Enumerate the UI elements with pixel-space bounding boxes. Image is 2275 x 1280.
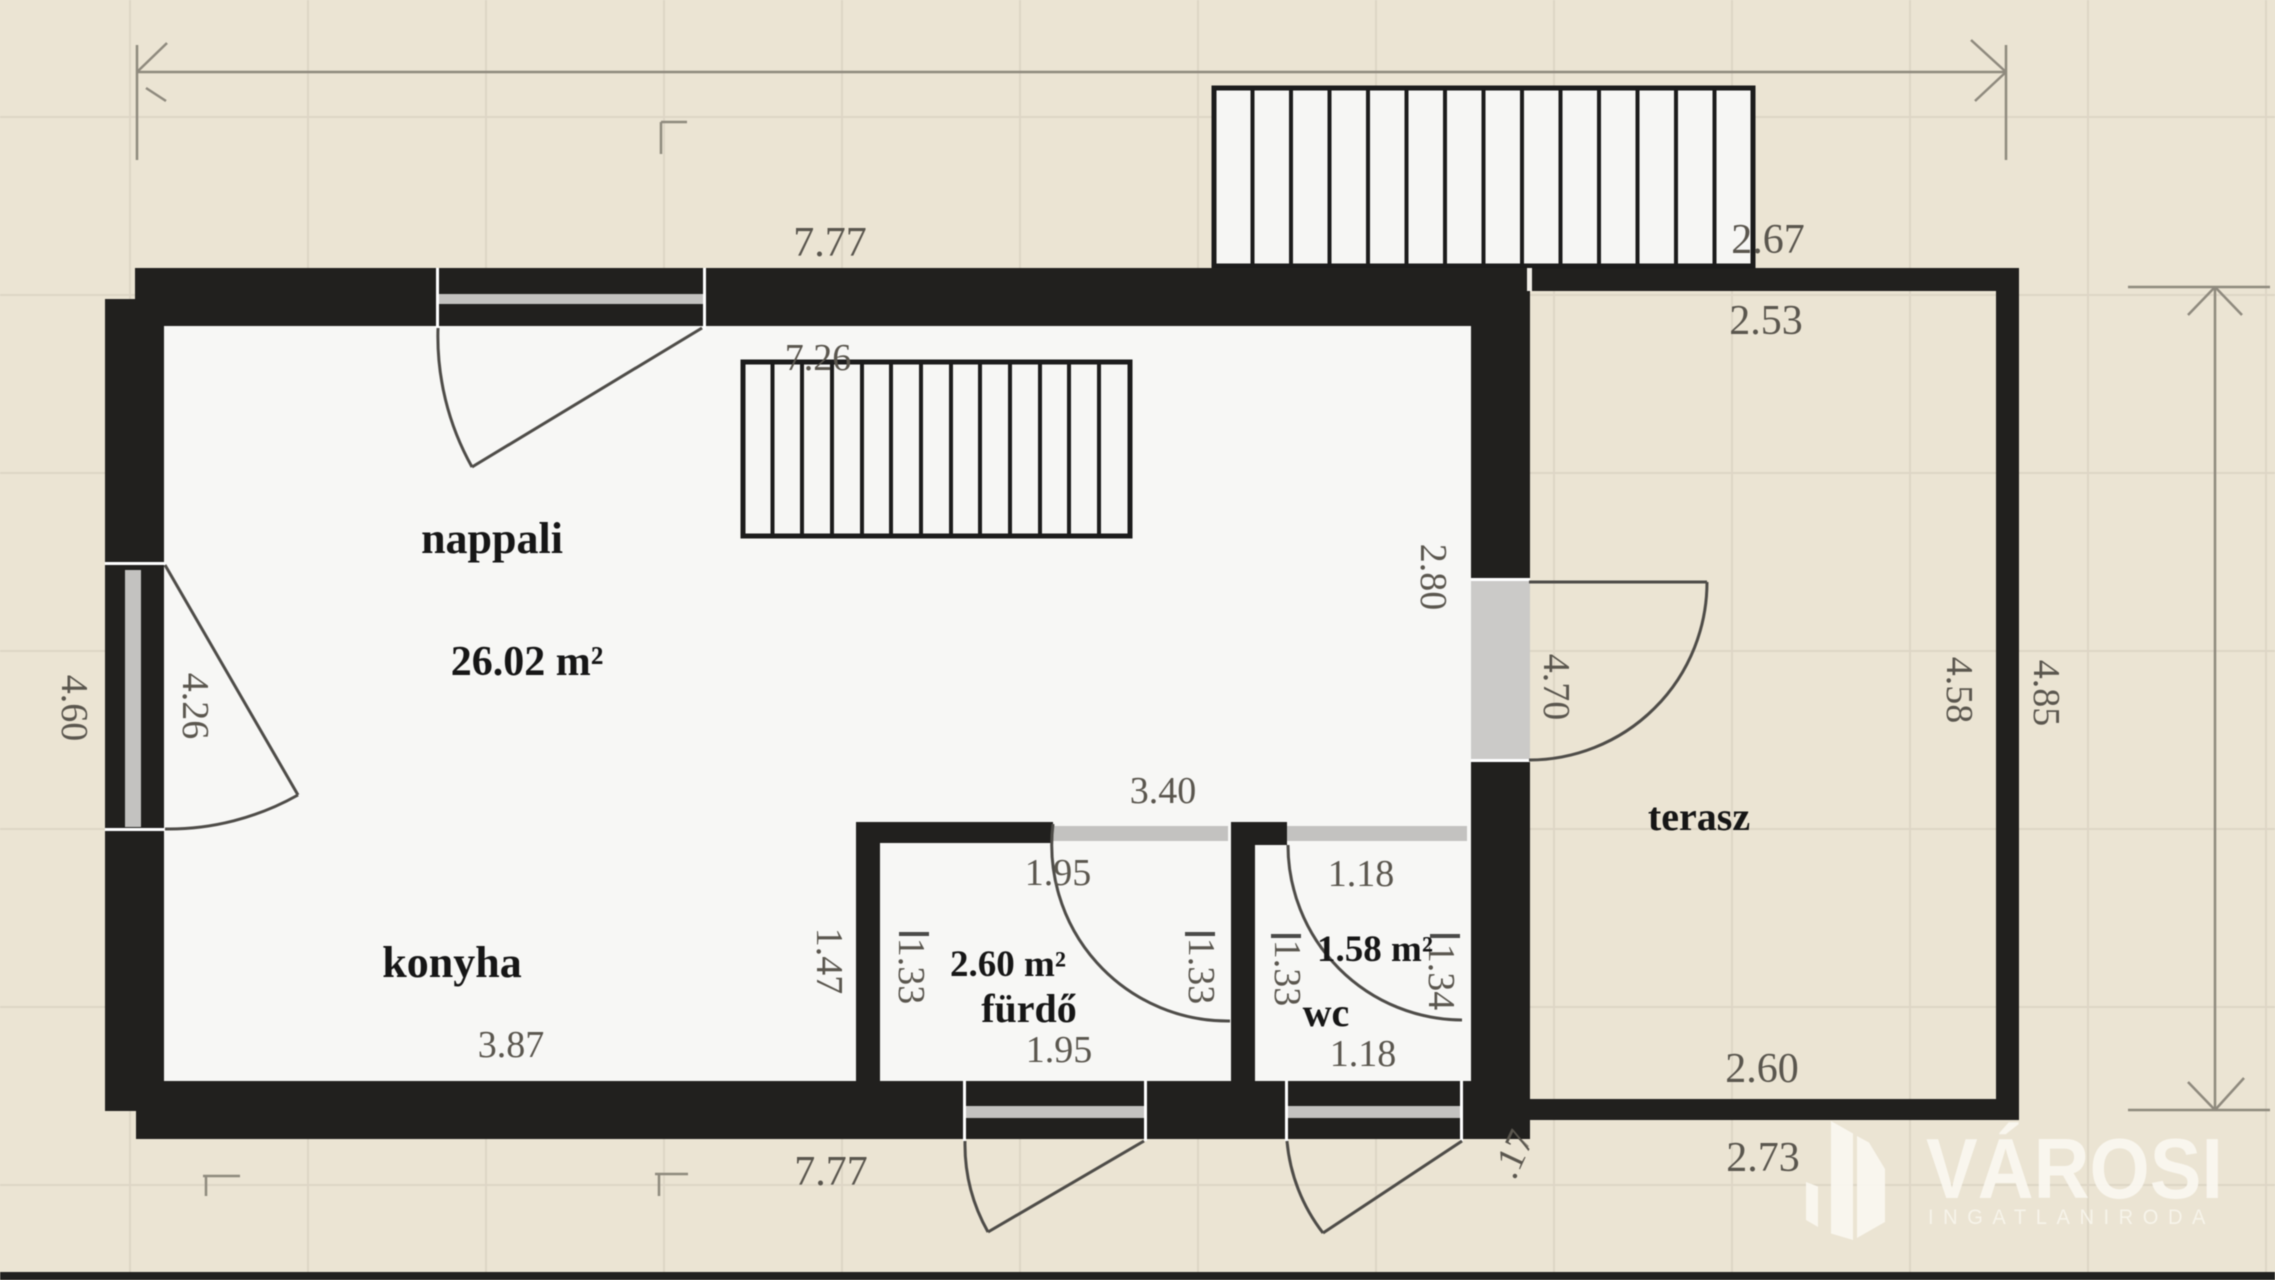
- svg-text:2.80: 2.80: [1412, 544, 1454, 611]
- svg-text:2.67: 2.67: [1731, 217, 1805, 263]
- svg-text:4.85: 4.85: [2025, 660, 2067, 727]
- svg-text:1.18: 1.18: [1330, 1033, 1397, 1075]
- svg-text:nappali: nappali: [421, 514, 563, 563]
- svg-text:1.33: 1.33: [1180, 938, 1222, 1005]
- svg-text:7.26: 7.26: [785, 337, 852, 379]
- svg-text:4.58: 4.58: [1938, 657, 1980, 724]
- svg-text:1.33: 1.33: [890, 938, 932, 1005]
- svg-text:2.73: 2.73: [1726, 1135, 1800, 1181]
- svg-text:fürdő: fürdő: [981, 986, 1077, 1031]
- svg-text:7.77: 7.77: [794, 1149, 868, 1195]
- svg-text:1.47: 1.47: [808, 928, 850, 995]
- svg-text:4.70: 4.70: [1535, 654, 1577, 721]
- svg-text:2.60 m²: 2.60 m²: [950, 944, 1066, 985]
- svg-text:7.77: 7.77: [793, 220, 867, 266]
- svg-text:2.60: 2.60: [1725, 1046, 1799, 1092]
- svg-text:wc: wc: [1303, 990, 1350, 1035]
- svg-text:3.40: 3.40: [1130, 770, 1197, 812]
- svg-text:26.02 m²: 26.02 m²: [451, 639, 604, 685]
- svg-text:4.60: 4.60: [53, 675, 95, 742]
- svg-text:VÁROSI: VÁROSI: [1926, 1122, 2223, 1217]
- svg-text:INGATLANIRODA: INGATLANIRODA: [1928, 1206, 2215, 1229]
- svg-text:terasz: terasz: [1648, 794, 1750, 839]
- svg-text:4.26: 4.26: [174, 673, 216, 740]
- svg-text:3.87: 3.87: [478, 1024, 545, 1066]
- svg-text:1.58 m²: 1.58 m²: [1317, 929, 1433, 970]
- svg-text:1.18: 1.18: [1328, 853, 1395, 895]
- svg-text:2.53: 2.53: [1729, 298, 1803, 344]
- svg-text:1.95: 1.95: [1026, 1029, 1093, 1071]
- svg-text:1.95: 1.95: [1025, 852, 1092, 894]
- svg-text:konyha: konyha: [382, 938, 521, 987]
